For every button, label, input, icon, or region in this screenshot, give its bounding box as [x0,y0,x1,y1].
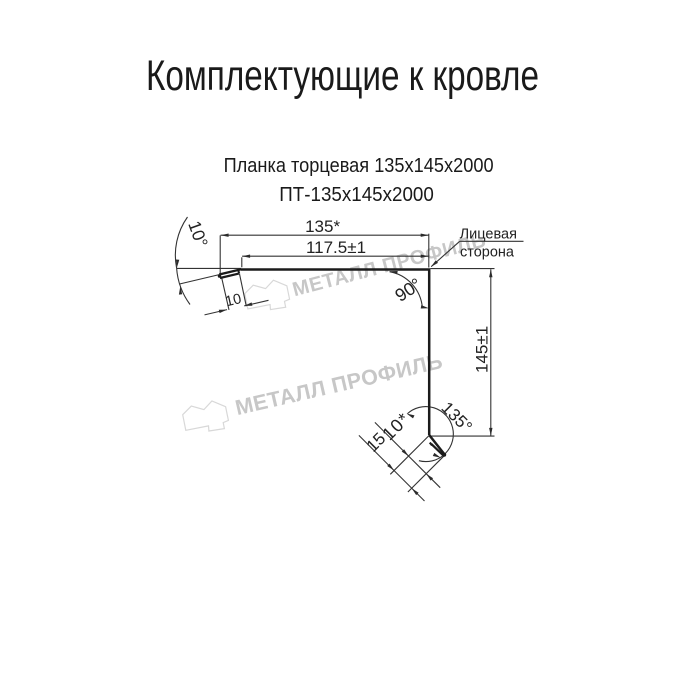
svg-text:90°: 90° [391,274,425,306]
svg-text:145±1: 145±1 [472,326,491,373]
svg-text:Планка торцевая 135х145х2000: Планка торцевая 135х145х2000 [224,155,494,177]
svg-text:Лицевая: Лицевая [460,226,517,242]
svg-text:10: 10 [224,291,243,310]
svg-text:Комплектующие к кровле: Комплектующие к кровле [146,53,539,100]
svg-text:ПТ-135х145х2000: ПТ-135х145х2000 [279,184,434,206]
svg-text:117.5±1: 117.5±1 [306,238,366,257]
svg-text:135*: 135* [305,217,340,236]
svg-text:10°: 10° [184,218,212,250]
svg-text:135°: 135° [438,398,476,436]
svg-text:сторона: сторона [460,244,515,260]
